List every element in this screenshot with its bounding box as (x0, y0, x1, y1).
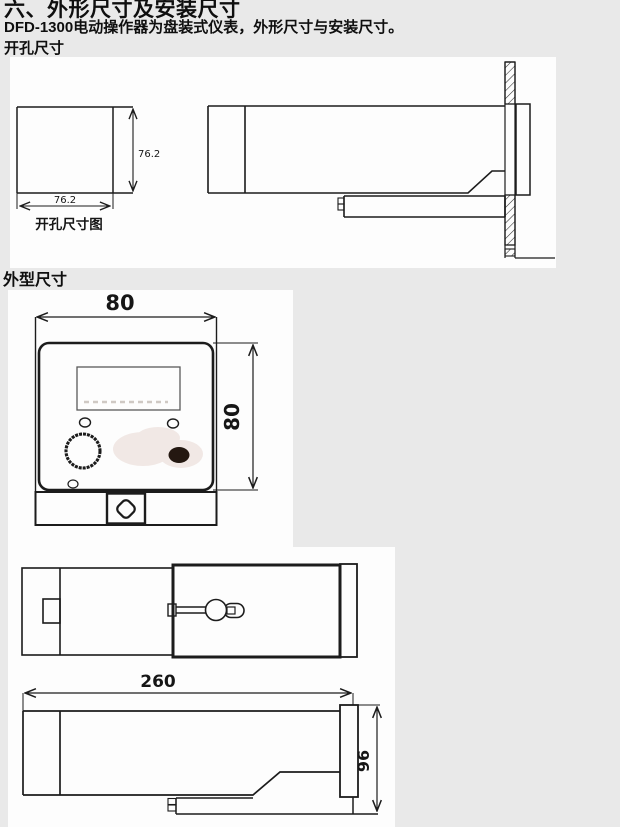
paper-block-side-views: 260 96 (8, 547, 395, 827)
dark-push-button (169, 447, 190, 463)
instrument-body-bottom (208, 171, 505, 193)
cutout-square-drawing (17, 107, 133, 209)
bezel-screw (68, 480, 78, 488)
cutout-square (17, 107, 133, 193)
latch-housing (107, 494, 145, 524)
bracket-screw-head2 (168, 805, 176, 811)
chassis-top (173, 565, 340, 657)
side-body (23, 711, 340, 795)
paper-block-cutout: 76.2 76.2 开孔尺寸图 (10, 57, 556, 268)
side-body-bottom (23, 772, 340, 795)
led-indicator-left (80, 418, 91, 427)
depth-label: 260 (140, 672, 176, 692)
lower-strip (36, 492, 217, 525)
side-view (23, 693, 380, 814)
scan-smudge (113, 427, 203, 468)
control-knob (66, 434, 100, 468)
clamp-screw-head (338, 198, 344, 204)
top-and-side-view-drawing: 260 96 (8, 547, 395, 827)
doc-intro: DFD-1300电动操作器为盘装式仪表，外形尺寸与安装尺寸。 (4, 16, 403, 37)
clamp-shaft (176, 607, 206, 613)
led-indicator-right (168, 419, 179, 428)
rear-housing (22, 568, 173, 655)
bracket-side-view (176, 797, 378, 814)
front-view-drawing: 80 (8, 290, 293, 547)
cutout-and-mount-drawing: 76.2 76.2 开孔尺寸图 (10, 57, 556, 268)
latch-keyhole (115, 498, 136, 519)
bracket-screw-head (168, 799, 176, 805)
top-view (22, 564, 357, 657)
display-window (77, 367, 180, 410)
section-label-outline: 外型尺寸 (3, 266, 67, 290)
front-width-label: 80 (105, 291, 134, 315)
clamp-screw-head2 (338, 204, 344, 210)
height-label: 96 (354, 750, 373, 772)
section-label-cutout: 开孔尺寸 (4, 37, 64, 58)
front-bezel-side (516, 104, 530, 195)
instrument-body (208, 106, 505, 193)
document-page: 六、外形尺寸及安装尺寸 DFD-1300电动操作器为盘装式仪表，外形尺寸与安装尺… (0, 0, 620, 827)
cutout-caption: 开孔尺寸图 (35, 216, 103, 233)
paper-block-front-view: 80 (8, 290, 293, 547)
depth-ext-lines (23, 693, 353, 711)
clamp-screw-assembly (168, 600, 244, 621)
clamp-ball (206, 600, 227, 621)
front-bezel-face (39, 343, 213, 490)
mounting-bracket (344, 196, 505, 217)
bezel-top-view (340, 564, 357, 657)
terminal-block (43, 599, 60, 623)
cutout-width-label: 76.2 (54, 195, 76, 206)
panel-mount-side-view (208, 62, 555, 258)
cutout-height-label: 76.2 (138, 149, 160, 160)
front-height-label: 80 (220, 403, 244, 431)
